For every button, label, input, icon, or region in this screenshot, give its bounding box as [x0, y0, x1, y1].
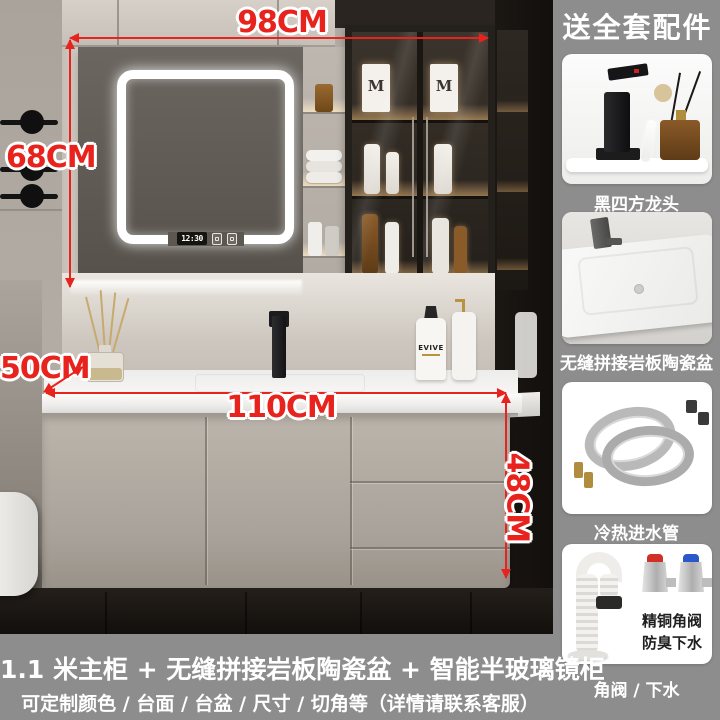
dimension-label-48cm: 48CM [500, 453, 535, 509]
reflected-light [497, 100, 528, 112]
valve-outlet [666, 578, 676, 587]
mirror-led-border [117, 70, 294, 244]
towel [306, 172, 342, 183]
open-shelf-niche [303, 47, 345, 288]
floor-seam [105, 592, 107, 634]
temp-indicator [634, 69, 639, 73]
accessory-card-hoses [562, 382, 712, 514]
bottle-brand-label: EVIVE [416, 344, 446, 352]
vanity-cabinet [42, 413, 510, 588]
accessory-card-faucet [562, 54, 712, 184]
toilet [0, 492, 38, 596]
angle-valve [678, 562, 704, 592]
towel-bar-mount [20, 110, 44, 134]
hose-brass-end [584, 472, 593, 488]
glass-reflection [352, 32, 417, 281]
drain-pipe [576, 574, 598, 654]
reflected-cabinet [497, 30, 528, 290]
glass-mirror-cabinet: M M [345, 25, 495, 288]
soap-bottle: EVIVE [416, 318, 446, 380]
door-seam [350, 417, 352, 585]
hose-brass-end [574, 462, 583, 478]
reflected-light [497, 180, 528, 192]
product-photo: 12:30 M M [0, 0, 553, 634]
accessories-title: 送全套配件 [555, 6, 720, 46]
black-square-faucet [604, 92, 630, 152]
shelf [566, 158, 708, 172]
drain-pipe-outlet [600, 574, 618, 598]
water-stream [640, 120, 656, 163]
hose-nut [698, 412, 709, 425]
black-faucet [272, 316, 286, 378]
floor-seam [245, 592, 247, 634]
faucet-lever [607, 63, 648, 80]
hot-valve-cap [647, 554, 663, 562]
valve-outlet [702, 578, 712, 587]
bottle-label-line [422, 354, 440, 356]
dimension-label-98cm: 98CM [232, 5, 332, 40]
glass-reflection [423, 32, 488, 281]
dimension-label-110cm: 110CM [221, 390, 341, 425]
wall-rail-line [0, 209, 62, 211]
valve-badge-line2: 防臭下水 [642, 632, 702, 653]
customization-note: 可定制颜色 / 台面 / 台盆 / 尺寸 / 切角等（详情请联系客服） [0, 689, 560, 716]
accessory-label-hoses: 冷热进水管 [553, 519, 720, 544]
dimension-label-68cm: 68CM [6, 140, 78, 175]
rattan-ball [654, 84, 672, 102]
light-toggle-icon [227, 233, 237, 245]
drain-rubber-collar [596, 596, 622, 609]
hose-nut [686, 400, 697, 413]
floor-seam [470, 592, 472, 634]
diffuser-bottle [660, 120, 700, 160]
gray-faucet-spout [606, 238, 622, 245]
diffuser-liquid [88, 368, 122, 380]
reflected-light [497, 258, 528, 270]
accessory-label-basin: 无缝拼接岩板陶瓷盆 [553, 349, 720, 374]
angle-valve [642, 562, 668, 592]
basin-drain [634, 284, 644, 294]
mirror-clock: 12:30 [177, 232, 207, 245]
defog-icon [212, 233, 222, 245]
cold-valve-cap [683, 554, 699, 562]
shelf-bottle [308, 222, 322, 256]
shelf [303, 112, 345, 114]
reflected-bottle [515, 312, 537, 378]
towel-bar-mount [20, 184, 44, 208]
shelf-bottle [325, 226, 339, 256]
shelf [303, 186, 345, 188]
product-title: 1.1 米主柜 + 无缝拼接岩板陶瓷盆 + 智能半玻璃镜柜 [0, 650, 560, 686]
pump-nozzle [455, 299, 465, 302]
shelf [303, 256, 345, 258]
accessory-card-drain: 精铜角阀 防臭下水 [562, 544, 712, 664]
basin-cavity [577, 246, 698, 316]
drawer-seam [350, 547, 510, 549]
floor-seam [360, 592, 362, 634]
towel [306, 150, 342, 161]
lotion-bottle [452, 312, 476, 380]
drawer-seam [350, 481, 510, 483]
accessory-card-basin [562, 212, 712, 344]
valve-badge-line1: 精铜角阀 [642, 610, 702, 631]
door-seam [205, 417, 207, 585]
decor-jar [315, 84, 333, 112]
cabinet-interior: M M [352, 32, 488, 281]
towel [306, 161, 342, 172]
under-mirror-light [70, 280, 302, 296]
